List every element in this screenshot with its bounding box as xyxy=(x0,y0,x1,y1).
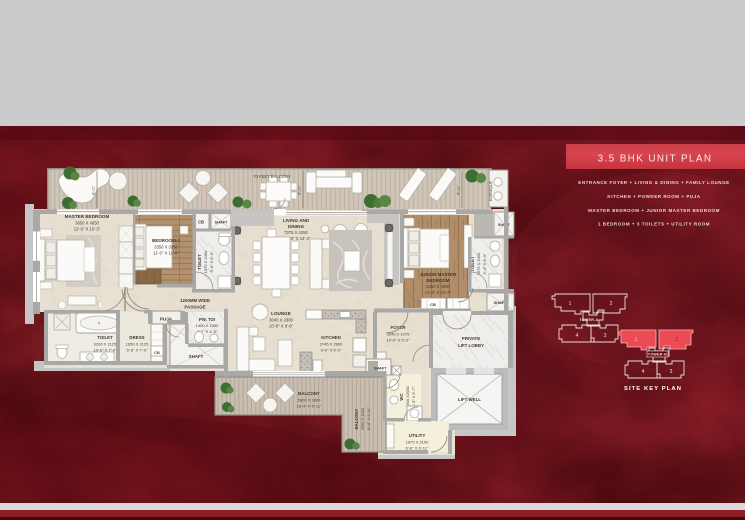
svg-text:1675 X 2450: 1675 X 2450 xyxy=(203,250,208,273)
svg-text:SHAFT: SHAFT xyxy=(215,221,228,225)
svg-text:10'-0" X 9'-6": 10'-0" X 9'-6" xyxy=(269,324,294,329)
svg-text:BALCONY: BALCONY xyxy=(298,391,320,396)
svg-text:8'-11": 8'-11" xyxy=(298,185,302,195)
svg-text:BEDROOM-1: BEDROOM-1 xyxy=(152,238,181,243)
svg-text:5'-6" X 7'-0": 5'-6" X 7'-0" xyxy=(127,348,148,353)
svg-text:9'-0" X 9'-2": 9'-0" X 9'-2" xyxy=(321,348,342,353)
svg-text:1 BEDROOM + 3 TOILETS + UTILIT: 1 BEDROOM + 3 TOILETS + UTILITY ROOM xyxy=(598,222,710,227)
svg-text:DINING: DINING xyxy=(288,224,305,229)
svg-text:5'-6" X 8'-0": 5'-6" X 8'-0" xyxy=(209,251,214,272)
svg-text:LOUNGE: LOUNGE xyxy=(271,311,291,316)
svg-text:BEDROOM: BEDROOM xyxy=(427,278,450,283)
svg-text:2745 X 2800: 2745 X 2800 xyxy=(320,342,343,347)
svg-text:PASSAGE: PASSAGE xyxy=(184,305,205,310)
svg-text:2: 2 xyxy=(610,301,613,307)
svg-text:7275 X 4350: 7275 X 4350 xyxy=(284,230,308,235)
svg-text:1300 X2000: 1300 X2000 xyxy=(405,385,410,407)
svg-text:MASTER BEDROOM + JUNIOR MASTER: MASTER BEDROOM + JUNIOR MASTER BEDROOM xyxy=(588,208,720,213)
svg-text:1: 1 xyxy=(569,301,572,307)
svg-text:1675 X 2450: 1675 X 2450 xyxy=(476,252,481,275)
svg-text:11'-0" X 15'-3": 11'-0" X 15'-3" xyxy=(425,290,452,295)
svg-text:SHAFT: SHAFT xyxy=(189,354,204,359)
svg-text:TOWER-A: TOWER-A xyxy=(579,318,598,322)
svg-text:3040 X 2900: 3040 X 2900 xyxy=(269,318,293,323)
svg-text:BARBEQUE: BARBEQUE xyxy=(489,180,493,201)
svg-text:TOILET: TOILET xyxy=(197,254,202,270)
svg-text:4: 4 xyxy=(576,333,579,339)
svg-text:LIVING AND: LIVING AND xyxy=(283,218,310,223)
svg-text:SHAFT: SHAFT xyxy=(374,366,388,371)
svg-text:LIFT LOBBY: LIFT LOBBY xyxy=(458,343,484,348)
svg-text:CB: CB xyxy=(430,302,436,307)
svg-text:12'-0" X 15'-3": 12'-0" X 15'-3" xyxy=(74,227,101,232)
svg-text:KITCHEN: KITCHEN xyxy=(321,335,341,340)
svg-text:4'-3" X 6'-7": 4'-3" X 6'-7" xyxy=(411,386,416,407)
svg-text:1875 X 2100: 1875 X 2100 xyxy=(406,440,429,445)
svg-text:TOILET: TOILET xyxy=(97,335,113,340)
svg-text:8'-11": 8'-11" xyxy=(457,185,461,195)
svg-text:10'-0" X 5'-2": 10'-0" X 5'-2" xyxy=(386,338,410,343)
svg-text:2: 2 xyxy=(676,337,679,343)
svg-text:JUNIOR MASTER: JUNIOR MASTER xyxy=(420,272,457,277)
svg-text:UTILITY: UTILITY xyxy=(409,433,426,438)
svg-text:PRIVATE: PRIVATE xyxy=(462,336,480,341)
svg-text:PW. TOI: PW. TOI xyxy=(199,317,215,322)
svg-text:4: 4 xyxy=(642,369,645,375)
svg-text:CB: CB xyxy=(154,351,160,355)
svg-text:SITE KEY PLAN: SITE KEY PLAN xyxy=(624,386,682,392)
svg-text:CB: CB xyxy=(198,220,204,225)
svg-text:WC: WC xyxy=(399,393,404,400)
svg-text:70 FEET BALCONY: 70 FEET BALCONY xyxy=(253,174,291,179)
svg-text:18'-4" X 5'-11": 18'-4" X 5'-11" xyxy=(297,404,323,409)
svg-text:KITCHEN + POWDER ROOM + PUJA: KITCHEN + POWDER ROOM + PUJA xyxy=(607,194,700,199)
svg-text:ENTRANCE FOYER + LIVING & DINI: ENTRANCE FOYER + LIVING & DINING + FAMIL… xyxy=(578,180,729,185)
svg-text:DRESS: DRESS xyxy=(129,335,144,340)
svg-text:11'-0" X 11'-0": 11'-0" X 11'-0" xyxy=(153,251,179,256)
svg-text:MASTER BEDROOM: MASTER BEDROOM xyxy=(65,214,110,219)
svg-text:8'-11": 8'-11" xyxy=(92,185,96,195)
svg-text:1650 X 2125: 1650 X 2125 xyxy=(126,342,149,347)
svg-text:1200MM WIDE: 1200MM WIDE xyxy=(180,298,210,303)
svg-text:3200 X 2125: 3200 X 2125 xyxy=(94,342,117,347)
svg-text:3350 X 4650: 3350 X 4650 xyxy=(426,284,450,289)
svg-text:3550 X 1800: 3550 X 1800 xyxy=(360,407,365,430)
svg-text:5600 X 1800: 5600 X 1800 xyxy=(298,398,321,403)
svg-text:3: 3 xyxy=(604,333,607,339)
svg-text:TOWER-B: TOWER-B xyxy=(648,353,667,357)
svg-text:3350 X 3350: 3350 X 3350 xyxy=(154,245,178,250)
svg-text:3650 X 4650: 3650 X 4650 xyxy=(75,221,99,226)
svg-text:BALCONY: BALCONY xyxy=(354,408,359,429)
svg-text:3: 3 xyxy=(670,369,673,375)
svg-text:1: 1 xyxy=(635,337,638,343)
svg-text:3.5 BHK UNIT PLAN: 3.5 BHK UNIT PLAN xyxy=(598,154,713,165)
svg-text:11'-6" X 5'-11": 11'-6" X 5'-11" xyxy=(366,406,371,431)
svg-text:5'-4" X 8'-0": 5'-4" X 8'-0" xyxy=(482,253,487,274)
svg-text:LIFT WELL: LIFT WELL xyxy=(458,397,481,402)
svg-text:6'-6" X 6'-11": 6'-6" X 6'-11" xyxy=(406,446,429,451)
svg-text:1400 X 1350: 1400 X 1350 xyxy=(196,323,219,328)
